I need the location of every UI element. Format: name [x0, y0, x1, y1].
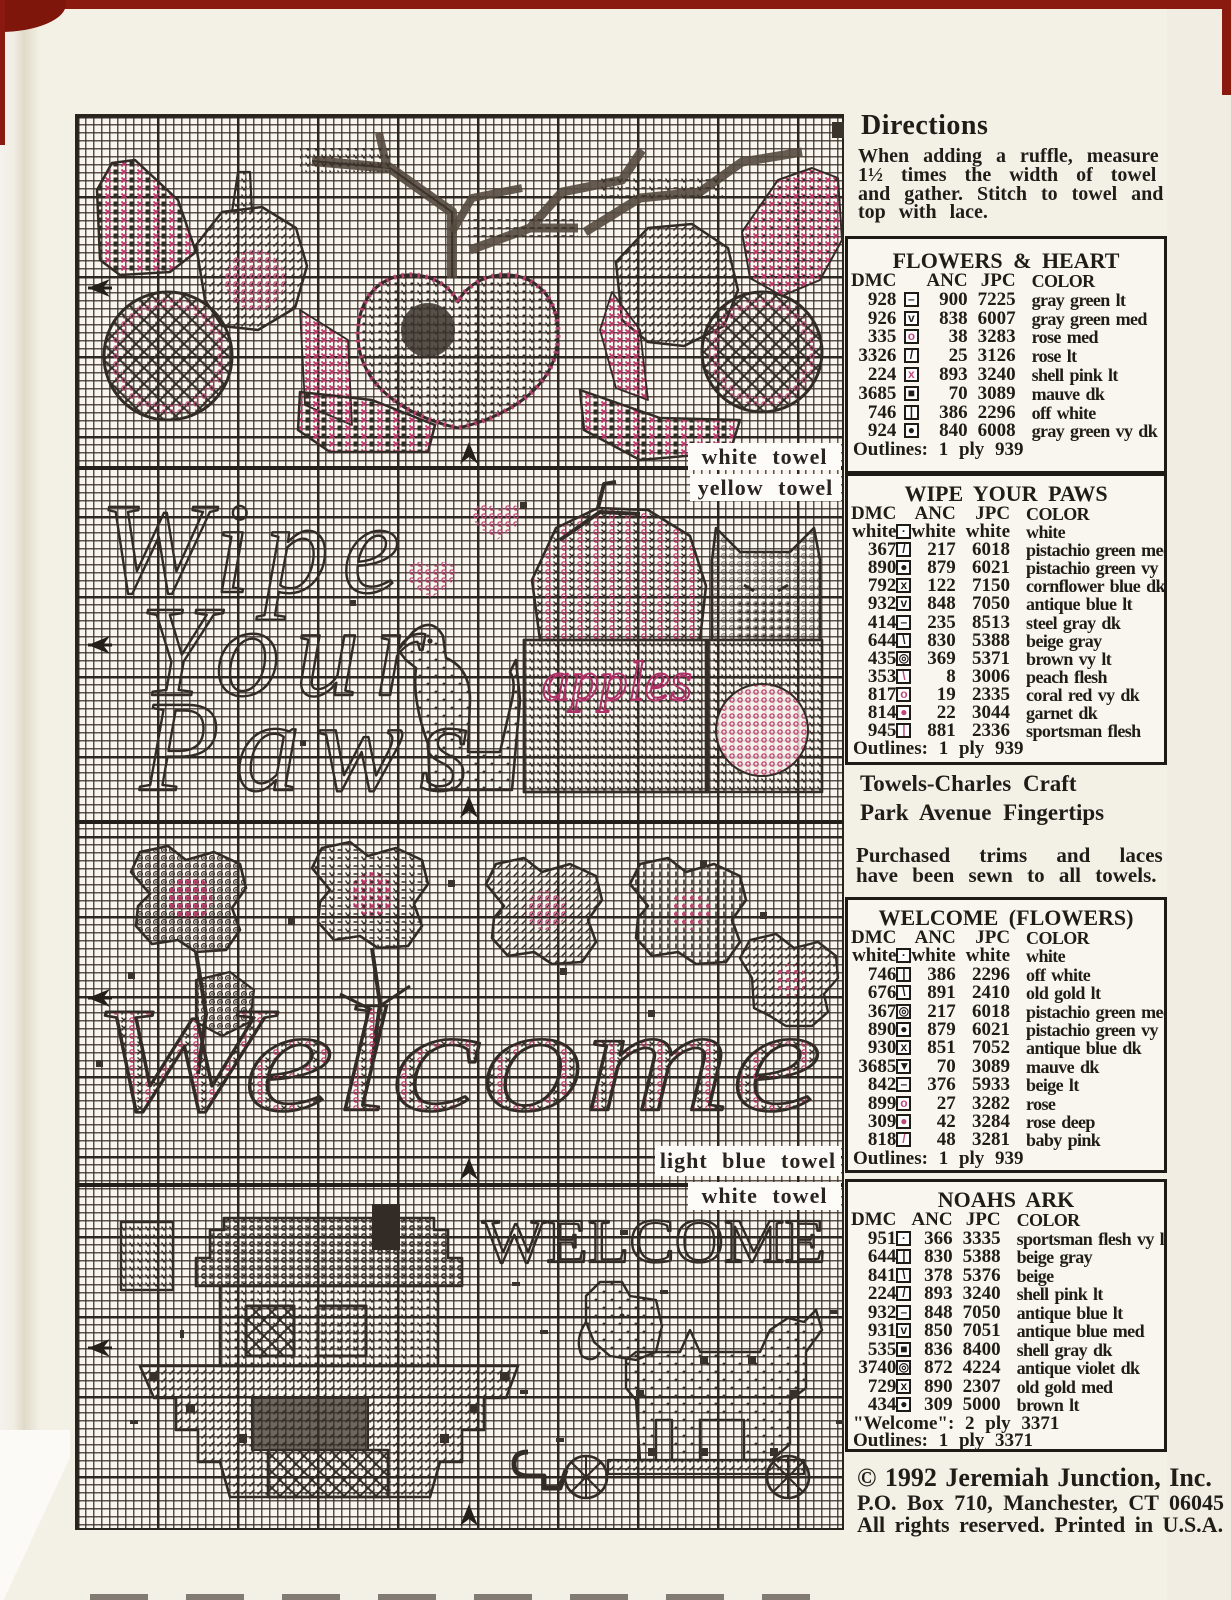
svg-text:Welcome: Welcome — [92, 977, 822, 1143]
svg-text:WELCOME: WELCOME — [482, 1208, 826, 1276]
svg-text:apples: apples — [542, 651, 692, 713]
